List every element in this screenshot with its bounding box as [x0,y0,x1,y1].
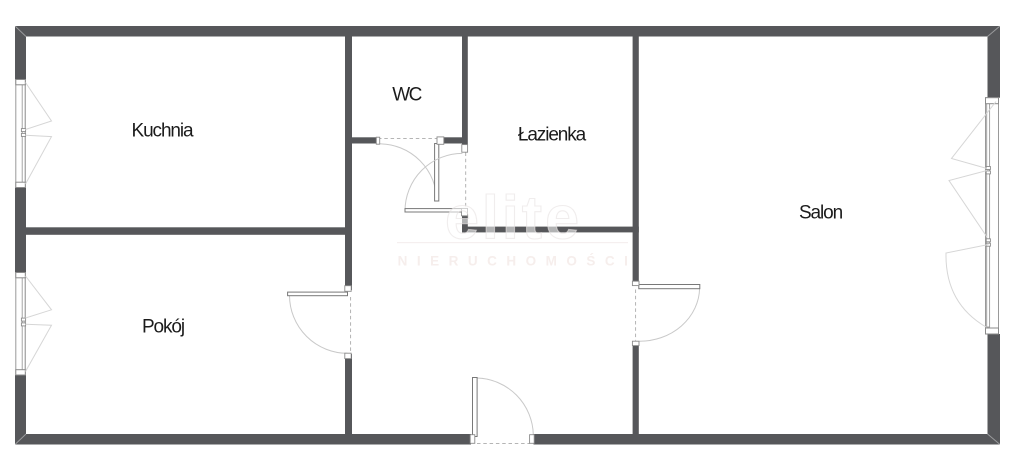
svg-text:elite: elite [445,184,582,252]
svg-text:Salon: Salon [799,202,843,223]
svg-text:WC: WC [392,84,421,105]
svg-text:Kuchnia: Kuchnia [132,121,194,142]
svg-text:Łazienka: Łazienka [518,124,587,145]
svg-text:NIERUCHOMOŚCI: NIERUCHOMOŚCI [398,254,638,269]
svg-text:Pokój: Pokój [142,316,184,337]
